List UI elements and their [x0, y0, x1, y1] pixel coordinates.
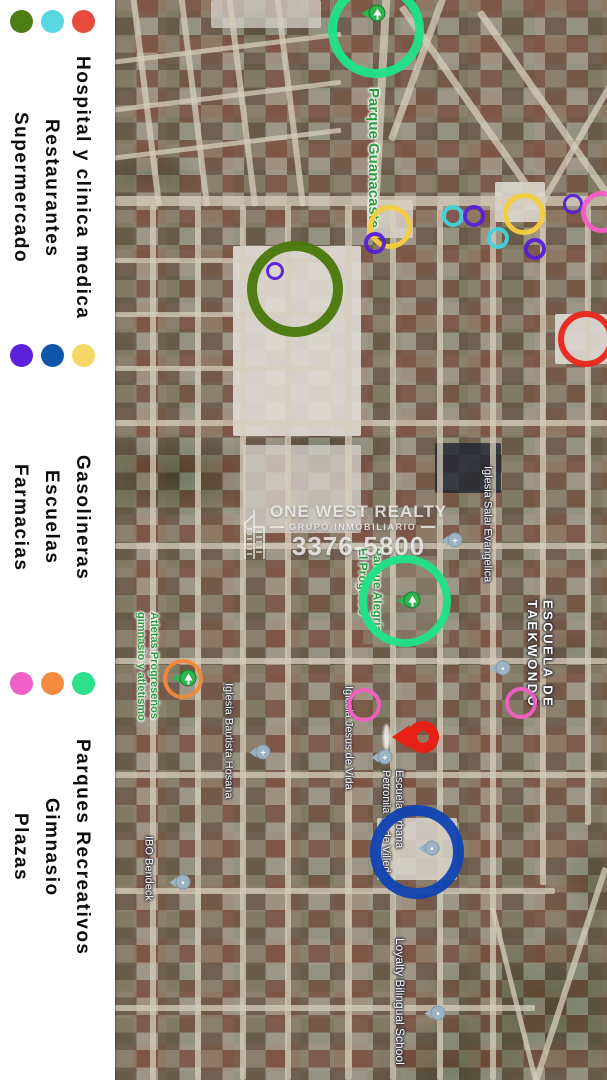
satellite-map: Parque GuanacasteIglesia Salai Evangelic… [115, 0, 607, 1080]
legend-label-parques: Parques Recreativos [67, 718, 98, 976]
legend-labels: GasolinerasEscuelasFarmacias [5, 415, 98, 620]
legend-label-hospital: Hospital y clinica medica [67, 38, 98, 338]
legend-labels: Hospital y clinica medicaRestaurantesSup… [5, 38, 98, 338]
legend-dot-hospital [72, 10, 95, 33]
legend-label-gimnasio: Gimnasio [36, 718, 67, 976]
map-marker-church-icon: + [256, 745, 271, 760]
legend-dot-escuelas [41, 344, 64, 367]
legend-label-plazas: Plazas [5, 718, 36, 976]
map-marker-park-icon [180, 670, 197, 687]
legend-label-farmacias: Farmacias [5, 415, 36, 620]
map-marker-church-icon: + [378, 750, 393, 765]
legend-dot-restaurantes [41, 10, 64, 33]
map-marker-school-icon: ▪ [496, 661, 511, 676]
map-marker-school-icon: ▪ [431, 1006, 446, 1021]
map-marker-park-icon [369, 5, 386, 22]
amenities-map-flyer: Parque GuanacasteIglesia Salai Evangelic… [0, 0, 607, 1080]
legend-dots-row [10, 672, 95, 695]
legend-label-supermercado: Supermercado [5, 38, 36, 338]
legend-dots-row [10, 10, 95, 33]
map-marker-park-icon [404, 592, 421, 609]
legend-dot-plazas [10, 672, 33, 695]
legend-dot-gasolineras [72, 344, 95, 367]
legend-label-restaurantes: Restaurantes [36, 38, 67, 338]
legend-dot-farmacias [10, 344, 33, 367]
map-marker-school-icon: ▪ [425, 841, 440, 856]
map-marker-red-icon [407, 721, 439, 753]
map-marker-school-icon: ▪ [176, 875, 191, 890]
legend-label-gasolineras: Gasolineras [67, 415, 98, 620]
legend-dots-row [10, 344, 95, 367]
map-marker-church-icon: + [448, 533, 463, 548]
legend-label-escuelas: Escuelas [36, 415, 67, 620]
map-pins-layer: +++▪▪▪▪ [115, 0, 607, 1080]
legend-dot-supermercado [10, 10, 33, 33]
legend-sidebar: Hospital y clinica medicaRestaurantesSup… [0, 0, 115, 1080]
legend-labels: Parques RecreativosGimnasioPlazas [5, 718, 98, 976]
legend-dot-gimnasio [41, 672, 64, 695]
legend-dot-parques [72, 672, 95, 695]
